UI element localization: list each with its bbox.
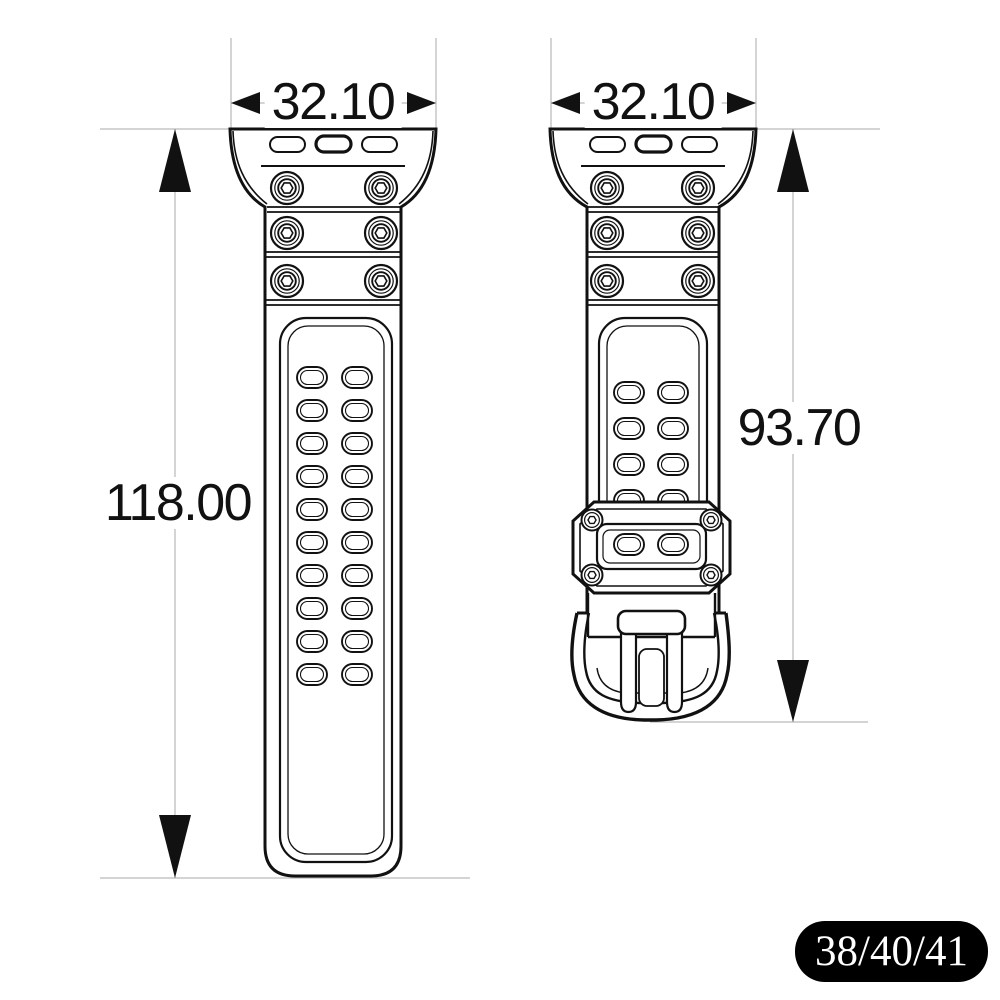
lug-slots [590, 136, 717, 152]
strap-buckle-view [550, 129, 756, 720]
strap-outline [230, 129, 436, 876]
buckle-tang [618, 611, 685, 712]
dimension-lines [100, 38, 880, 878]
length-dimension-label-side: 118.00 [98, 477, 258, 529]
length-dimension-label-buckle: 93.70 [731, 402, 868, 454]
dimension-diagram: 32.10 32.10 118.00 93.70 38/40/41 [0, 0, 1000, 1000]
keeper-loop [573, 502, 730, 593]
size-badge-label: 38/40/41 [815, 927, 968, 976]
width-dimension-label-side: 32.10 [265, 76, 402, 128]
lug-slots [270, 136, 397, 152]
width-dimension-label-buckle: 32.10 [585, 76, 722, 128]
strap-side-view [230, 129, 436, 876]
size-badge: 38/40/41 [795, 921, 988, 982]
